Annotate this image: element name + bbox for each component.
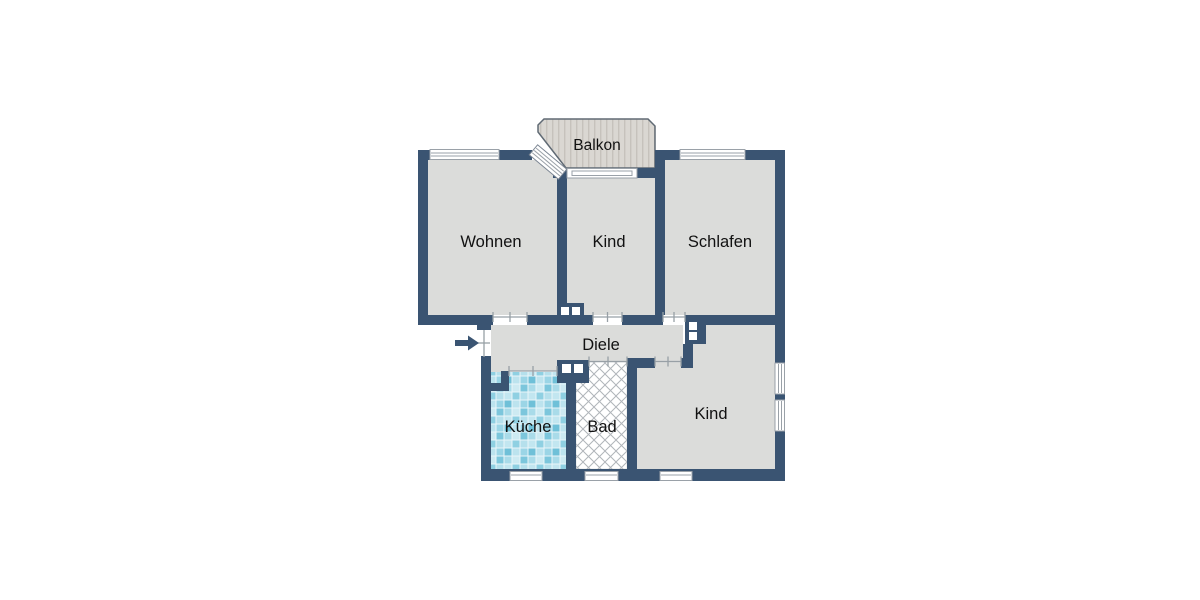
wall-left (418, 150, 428, 325)
wall-bad-kind (627, 362, 637, 469)
label-balkon: Balkon (573, 137, 620, 154)
window-kind-bottom (660, 472, 692, 481)
wall-kind-schlafen (655, 160, 665, 315)
window-kueche-bottom (510, 472, 542, 481)
wall-kind-corner-right (637, 168, 655, 178)
wall-diele-top-d (622, 315, 663, 325)
wall-diele-top-b (527, 315, 557, 325)
wall-kueche-left (481, 356, 491, 469)
entrance-arrow-icon (455, 336, 479, 351)
shaft-diele-right (685, 318, 706, 344)
label-schlafen: Schlafen (688, 233, 752, 251)
window-schlafen (680, 150, 745, 160)
wall-diele-top-c (584, 315, 593, 325)
shaft-opening (689, 332, 697, 340)
door-entrance (478, 330, 490, 357)
wall-wohnen-kind (557, 168, 567, 315)
window-kind-balkon (567, 169, 637, 179)
shaft-opening (562, 364, 571, 373)
window-bad-bottom (585, 472, 618, 481)
wall-kueche-step-h (481, 383, 509, 391)
label-kueche: Küche (505, 418, 552, 436)
label-wohnen: Wohnen (460, 233, 521, 251)
shaft-opening (689, 322, 697, 330)
window-kind-right-2 (775, 400, 785, 431)
shaft-opening (572, 307, 580, 315)
shaft-bad (557, 360, 589, 383)
shaft-opening (574, 364, 583, 373)
wall-kueche-bad (566, 380, 576, 469)
window-wohnen (430, 150, 499, 160)
label-bad: Bad (587, 418, 616, 436)
label-kind-unten: Kind (694, 405, 727, 423)
wall-diele-bottom-a (627, 358, 655, 368)
window-kind-right-1 (775, 363, 785, 394)
floor-plan-svg: Balkon Wohnen Kind Schlafen Diele Küche … (0, 0, 1200, 600)
floor-plan-page: Balkon Wohnen Kind Schlafen Diele Küche … (0, 0, 1200, 600)
label-diele: Diele (582, 336, 620, 354)
wall-entrance-stub-top (477, 315, 491, 330)
wall-diele-right (683, 344, 693, 368)
shaft-opening (561, 307, 569, 315)
label-kind-oben: Kind (592, 233, 625, 251)
